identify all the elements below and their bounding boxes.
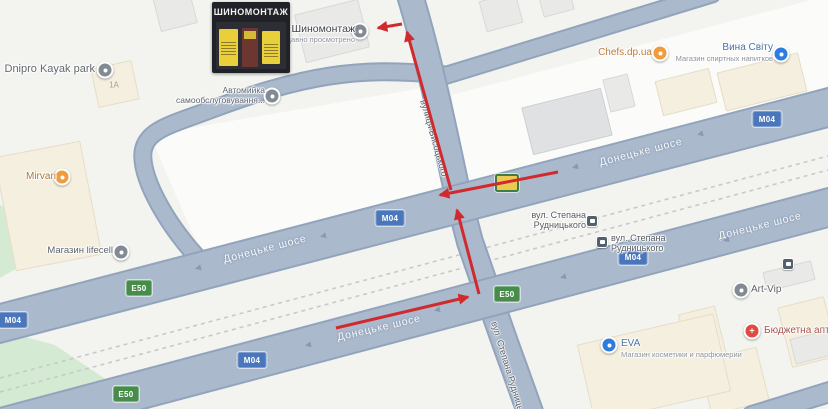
- route-arrow-4: [407, 32, 451, 190]
- route-arrow-2: [457, 210, 479, 294]
- route-arrows-layer: [0, 0, 828, 409]
- route-arrow-1: [336, 297, 468, 328]
- route-arrow-3: [440, 172, 558, 195]
- route-arrow-5: [378, 24, 402, 28]
- map-canvas[interactable]: 1А Донецьке шосеДонецьке шосеДонецьке шо…: [0, 0, 828, 409]
